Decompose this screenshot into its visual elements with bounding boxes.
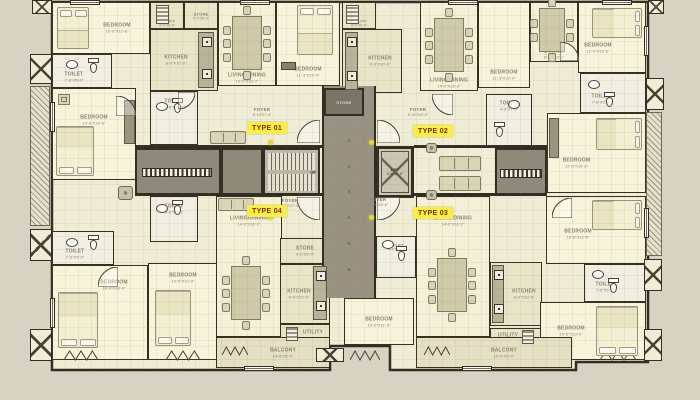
bed-blanket bbox=[57, 127, 93, 148]
kitchen-counter-symbol bbox=[198, 32, 214, 88]
wc-bowl bbox=[174, 205, 182, 215]
room-dims: 14'-0"X16'-2" bbox=[430, 83, 468, 88]
wc-symbol bbox=[172, 200, 183, 215]
bed-pillow bbox=[599, 347, 616, 354]
dining-set bbox=[427, 247, 477, 323]
room-label: KITCHEN8'-0"X10'-6" bbox=[164, 54, 188, 65]
bed-pillow bbox=[300, 8, 314, 15]
door-arc-symbol bbox=[560, 42, 579, 61]
room-dims: 12'-0"X13'-6" bbox=[584, 48, 612, 53]
foyer-name: FOYER bbox=[281, 198, 299, 204]
door-arc-symbol bbox=[432, 94, 453, 115]
room-label: BEDROOM12'-0"X13'-6" bbox=[584, 42, 612, 53]
basin-symbol bbox=[66, 60, 78, 69]
door-arc-symbol bbox=[116, 96, 136, 116]
room-dims: 10'-0"X11'-6" bbox=[365, 322, 393, 327]
wc-bowl bbox=[398, 251, 406, 261]
wc-symbol bbox=[396, 246, 407, 261]
dining-table-symbol bbox=[437, 258, 467, 312]
bed-pillow bbox=[635, 217, 640, 228]
foyer-label: FOYER6'-10"X7'-4" bbox=[253, 107, 271, 117]
room-dims: 11'-3"X13'-9" bbox=[294, 73, 322, 78]
bed-symbol bbox=[58, 292, 98, 348]
bed-symbol bbox=[57, 7, 89, 49]
passage-letter: A bbox=[347, 215, 350, 220]
window-symbol bbox=[448, 0, 478, 5]
stair-flight-down bbox=[268, 174, 315, 191]
bed-pillow bbox=[175, 337, 189, 344]
chair-symbol bbox=[223, 39, 231, 48]
sofa-symbol bbox=[439, 156, 481, 171]
dining-table-symbol bbox=[232, 16, 262, 70]
room-bedroom-10: BEDROOM10'-0"X11'-6" bbox=[344, 298, 414, 345]
duct-shaft-symbol bbox=[644, 329, 662, 361]
chair-symbol bbox=[243, 71, 251, 80]
room-dims: 14'-0"X16'-2" bbox=[230, 221, 268, 226]
floor-plan-canvas: UP PASSAGE STORE LIFT 5'-6"X6'-6" BEDROO… bbox=[0, 0, 700, 400]
chair-symbol bbox=[468, 268, 476, 277]
room-label: BALCONY14'-6"X5'-0" bbox=[491, 347, 517, 358]
fridge-symbol bbox=[286, 327, 298, 341]
foyer-dims: 8'-10"X10'-8" bbox=[368, 203, 388, 208]
bed-symbol bbox=[596, 118, 642, 150]
room-label: KITCHEN8'-0"X10'-6" bbox=[368, 55, 392, 66]
appliance-symbol bbox=[347, 37, 357, 47]
chair-symbol bbox=[263, 53, 271, 62]
bed-pillow bbox=[158, 337, 172, 344]
ceiling-light-dot bbox=[369, 140, 374, 145]
bed-blanket bbox=[597, 119, 616, 149]
lobby-left-inner bbox=[221, 148, 263, 196]
chair-symbol bbox=[425, 28, 433, 37]
appliance-symbol bbox=[202, 69, 212, 79]
wc-bowl bbox=[90, 240, 98, 250]
chair-symbol bbox=[243, 6, 251, 15]
room-label: STORE4'-0"X6'-0" bbox=[193, 11, 209, 20]
wc-bowl bbox=[610, 283, 618, 293]
room-label: BALCONY14'-6"X5'-0" bbox=[270, 347, 296, 358]
chair-symbol bbox=[425, 55, 433, 64]
bed-symbol bbox=[596, 306, 638, 356]
room-dims: 10'-0"X12'-6" bbox=[103, 29, 131, 34]
door-arc-symbol bbox=[98, 267, 118, 287]
stair-flight-up bbox=[268, 153, 315, 170]
wc-bowl bbox=[496, 127, 504, 137]
door-arc-symbol bbox=[297, 197, 320, 220]
window-symbol bbox=[462, 366, 492, 371]
chair-symbol bbox=[222, 276, 230, 285]
wc-symbol bbox=[494, 122, 505, 137]
window-symbol bbox=[644, 208, 649, 238]
basin-symbol bbox=[592, 270, 604, 279]
room-dims: 4'-0"X6'-0" bbox=[193, 16, 209, 20]
fridge-symbol bbox=[156, 5, 169, 24]
dining-set bbox=[222, 5, 272, 81]
zigzag-window-symbol bbox=[222, 343, 248, 353]
sofa-cushion-line bbox=[468, 158, 469, 169]
duct-shaft-symbol bbox=[648, 0, 664, 14]
door-arc-symbol bbox=[552, 198, 572, 218]
room-label: BEDROOM10'-0"X13'-0" bbox=[557, 325, 585, 336]
sofa-cushion-line bbox=[243, 200, 244, 209]
room-bedroom-6: BEDROOM11'-3"X13'-9" bbox=[478, 2, 530, 88]
room-dims: 14'-6"X5'-0" bbox=[491, 353, 517, 358]
window-symbol bbox=[50, 298, 55, 328]
room-dims: 8'-0"X10'-6" bbox=[512, 295, 536, 300]
basin-symbol bbox=[588, 80, 600, 89]
chair-symbol bbox=[548, 53, 556, 62]
chair-symbol bbox=[530, 19, 538, 28]
room-label: BEDROOM11'-3"X13'-9" bbox=[294, 66, 322, 77]
fridge-symbol bbox=[346, 5, 359, 24]
bed-pillow bbox=[317, 8, 331, 15]
room-label: KITCHEN8'-0"X10'-6" bbox=[512, 288, 536, 299]
chair-symbol bbox=[223, 26, 231, 35]
wc-symbol bbox=[88, 235, 99, 250]
appliance-symbol bbox=[494, 270, 504, 280]
chair-symbol bbox=[263, 26, 271, 35]
chair-symbol bbox=[262, 303, 270, 312]
ledge-hatch bbox=[30, 86, 50, 226]
bed-pillow bbox=[619, 347, 636, 354]
room-dims: 4'-0"X5'-0" bbox=[296, 252, 315, 257]
duct-shaft-symbol bbox=[30, 329, 52, 361]
window-symbol bbox=[644, 26, 649, 56]
door-arc-symbol bbox=[377, 120, 400, 143]
chair-symbol bbox=[465, 55, 473, 64]
wc-symbol bbox=[88, 58, 99, 73]
foyer-dims: 6'-10"X10'-8" bbox=[408, 113, 428, 118]
passage-letter: S bbox=[347, 189, 350, 194]
basin-symbol bbox=[156, 204, 168, 213]
chair-symbol bbox=[530, 33, 538, 42]
bed-symbol bbox=[592, 8, 642, 38]
chair-symbol bbox=[222, 303, 230, 312]
bed-pillow bbox=[75, 10, 87, 17]
dining-set bbox=[424, 7, 474, 83]
room-label: BEDROOM10'-0"X12'-6" bbox=[103, 22, 131, 33]
basin-symbol bbox=[66, 238, 78, 247]
door-arc-symbol bbox=[178, 92, 195, 109]
window-symbol bbox=[244, 366, 274, 371]
bed-pillow bbox=[80, 339, 96, 346]
room-label: STORE4'-0"X5'-0" bbox=[296, 245, 315, 256]
dining-table-symbol bbox=[434, 18, 464, 72]
bed-pillow bbox=[635, 136, 640, 148]
chair-symbol bbox=[566, 33, 574, 42]
doormat-hatch bbox=[500, 169, 542, 178]
bed-blanket bbox=[58, 30, 88, 48]
foyer-name: FOYER bbox=[408, 107, 428, 113]
bed-blanket bbox=[59, 293, 97, 317]
passage-corridor: PASSAGE bbox=[322, 86, 376, 298]
chair-symbol bbox=[468, 295, 476, 304]
chair-symbol bbox=[262, 276, 270, 285]
wc-symbol bbox=[604, 92, 615, 107]
room-label: BEDROOM11'-3"X13'-9" bbox=[490, 69, 518, 80]
appliance-symbol bbox=[316, 301, 326, 311]
bed-symbol bbox=[155, 290, 191, 346]
wardrobe-symbol bbox=[549, 118, 559, 158]
fridge-symbol bbox=[522, 330, 534, 344]
appliance-symbol bbox=[494, 304, 504, 314]
dining-table-symbol bbox=[231, 266, 261, 320]
armchair-symbol bbox=[58, 94, 70, 105]
room-label: BEDROOM10'-0"X14'-6" bbox=[80, 114, 108, 125]
chair-symbol bbox=[448, 313, 456, 322]
sofa-cushion-line bbox=[231, 200, 232, 209]
room-dims: 11'-3"X13'-9" bbox=[490, 76, 518, 81]
room-dims: 10'-6"X12'-0" bbox=[169, 278, 197, 283]
chair-symbol bbox=[425, 41, 433, 50]
bed-pillow bbox=[61, 339, 77, 346]
room-dims: 8'-0"X10'-6" bbox=[368, 62, 392, 67]
foyer-label: FOYER6'-10"X10'-8" bbox=[408, 107, 428, 117]
sofa-cushion-line bbox=[235, 133, 236, 142]
ceiling-light-dot bbox=[369, 215, 374, 220]
planter-symbol bbox=[426, 190, 437, 200]
room-toilet-2: TOILET7'-6"X5'-0" bbox=[52, 231, 114, 265]
bed-blanket bbox=[593, 9, 614, 37]
chair-symbol bbox=[223, 53, 231, 62]
room-dims: 8'-0"X10'-6" bbox=[164, 61, 188, 66]
room-dims: 14'-0"X16'-2" bbox=[434, 221, 472, 226]
duct-shaft-symbol bbox=[30, 54, 52, 84]
foyer-dims: 6'-10"X7'-4" bbox=[253, 113, 271, 118]
kitchen-counter-symbol bbox=[313, 266, 327, 320]
appliance-symbol bbox=[316, 271, 326, 281]
bed-pillow bbox=[635, 25, 640, 36]
duct-shaft-symbol bbox=[30, 229, 52, 261]
room-label: TOILET7'-6"X5'-0" bbox=[66, 248, 85, 259]
room-toilet-1: TOILET7'-6"X5'-0" bbox=[52, 54, 112, 88]
stairs-up-label: UP bbox=[310, 170, 316, 175]
duct-shaft-symbol bbox=[644, 259, 662, 291]
bed-pillow bbox=[635, 121, 640, 133]
chair-symbol bbox=[428, 295, 436, 304]
bed-pillow bbox=[77, 167, 92, 174]
basin-symbol bbox=[508, 100, 520, 109]
interior-wall bbox=[135, 193, 322, 196]
room-dims: 10'-0"X14'-6" bbox=[80, 121, 108, 126]
chair-symbol bbox=[448, 248, 456, 257]
kitchen-counter-symbol bbox=[492, 265, 504, 323]
room-label: BEDROOM12'-0"X10'-6" bbox=[563, 157, 591, 168]
store-room-dark: STORE bbox=[324, 88, 364, 116]
ceiling-light-dot bbox=[268, 140, 273, 145]
lift-dims: 5'-6"X6'-6" bbox=[387, 172, 403, 177]
chair-symbol bbox=[263, 39, 271, 48]
appliance-symbol bbox=[347, 71, 357, 81]
dining-set bbox=[221, 255, 271, 331]
room-label: BEDROOM10'-6"X12'-0" bbox=[564, 228, 592, 239]
chair-symbol bbox=[222, 289, 230, 298]
foyer-name: FOYER bbox=[253, 107, 271, 113]
bed-symbol bbox=[592, 200, 642, 230]
store-label: STORE bbox=[336, 100, 351, 105]
chair-symbol bbox=[465, 41, 473, 50]
passage-letter: G bbox=[347, 241, 351, 246]
bed-blanket bbox=[156, 291, 190, 315]
unit-type-03-label: TYPE 03 bbox=[413, 207, 453, 219]
chair-symbol bbox=[566, 19, 574, 28]
bed-blanket bbox=[597, 307, 637, 328]
room-dims: 8'-0"X10'-6" bbox=[287, 295, 311, 300]
zigzag-window-symbol bbox=[166, 348, 200, 359]
bed-symbol bbox=[56, 126, 94, 176]
foyer-label: FOYER8'-10"X10'-8" bbox=[368, 197, 388, 207]
chair-symbol bbox=[468, 281, 476, 290]
zigzag-window-symbol bbox=[64, 348, 98, 359]
window-symbol bbox=[240, 0, 270, 5]
room-label: TOILET7'-6"X5'-0" bbox=[65, 71, 84, 82]
wc-symbol bbox=[608, 278, 619, 293]
window-symbol bbox=[602, 0, 632, 5]
staircase: UP bbox=[263, 148, 320, 196]
duct-shaft-symbol bbox=[316, 348, 344, 362]
room-dims: 12'-0"X10'-6" bbox=[563, 164, 591, 169]
passage-letter: S bbox=[347, 164, 350, 169]
bed-pillow bbox=[59, 167, 74, 174]
sofa-cushion-line bbox=[223, 133, 224, 142]
bed-pillow bbox=[635, 203, 640, 214]
foyer-name: FOYER bbox=[368, 197, 388, 203]
chair-symbol bbox=[428, 281, 436, 290]
sofa-cushion-line bbox=[454, 178, 455, 189]
sofa-symbol bbox=[439, 176, 481, 191]
unit-type-01-label: TYPE 01 bbox=[247, 122, 287, 134]
unit-type-02-label: TYPE 02 bbox=[413, 125, 453, 137]
room-label: BEDROOM10'-6"X12'-0" bbox=[169, 272, 197, 283]
chair-symbol bbox=[465, 28, 473, 37]
bed-blanket bbox=[298, 33, 332, 54]
zigzag-window-symbol bbox=[424, 343, 450, 353]
chair-symbol bbox=[445, 73, 453, 82]
room-label: BEDROOM10'-0"X11'-6" bbox=[365, 316, 393, 327]
room-dims: 7'-6"X5'-0" bbox=[66, 255, 85, 260]
sofa-cushion-line bbox=[468, 178, 469, 189]
basin-symbol bbox=[156, 102, 168, 111]
wc-bowl bbox=[90, 63, 98, 73]
bed-symbol bbox=[297, 5, 333, 55]
duct-shaft-symbol bbox=[32, 0, 52, 14]
chair-symbol bbox=[428, 268, 436, 277]
bed-pillow bbox=[60, 10, 72, 17]
chair-symbol bbox=[548, 0, 556, 7]
dresser-symbol bbox=[281, 62, 296, 70]
planter-symbol bbox=[426, 143, 437, 153]
kitchen-counter-symbol bbox=[345, 32, 358, 90]
interior-wall bbox=[135, 145, 322, 148]
room-dims: 10'-0"X13'-0" bbox=[557, 332, 585, 337]
passage-letter: A bbox=[347, 138, 350, 143]
zigzag-window-symbol bbox=[350, 348, 380, 359]
room-dims: 7'-6"X5'-0" bbox=[65, 78, 84, 83]
wc-bowl bbox=[606, 97, 614, 107]
room-dims: 10'-6"X12'-0" bbox=[564, 235, 592, 240]
doormat-hatch bbox=[142, 168, 212, 177]
chair-symbol bbox=[445, 8, 453, 17]
duct-shaft-symbol bbox=[646, 78, 664, 110]
chair-symbol bbox=[242, 321, 250, 330]
unit-type-04-label: TYPE 04 bbox=[247, 205, 287, 217]
chair-symbol bbox=[262, 289, 270, 298]
bed-blanket bbox=[593, 201, 614, 229]
sofa-cushion-line bbox=[454, 158, 455, 169]
basin-symbol bbox=[382, 240, 394, 249]
window-symbol bbox=[50, 102, 55, 132]
appliance-symbol bbox=[202, 37, 212, 47]
passage-letter: E bbox=[347, 267, 350, 272]
planter-symbol bbox=[118, 186, 133, 200]
sofa-symbol bbox=[210, 131, 246, 144]
room-store-1: STORE4'-0"X6'-0" bbox=[184, 2, 218, 29]
window-symbol bbox=[70, 0, 100, 5]
room-label: KITCHEN8'-0"X10'-6" bbox=[287, 288, 311, 299]
chair-symbol bbox=[242, 256, 250, 265]
lift-shaft: LIFT 5'-6"X6'-6" bbox=[376, 146, 414, 198]
door-arc-symbol bbox=[297, 120, 320, 143]
room-dims: 14'-6"X5'-0" bbox=[270, 353, 296, 358]
bed-pillow bbox=[635, 11, 640, 22]
